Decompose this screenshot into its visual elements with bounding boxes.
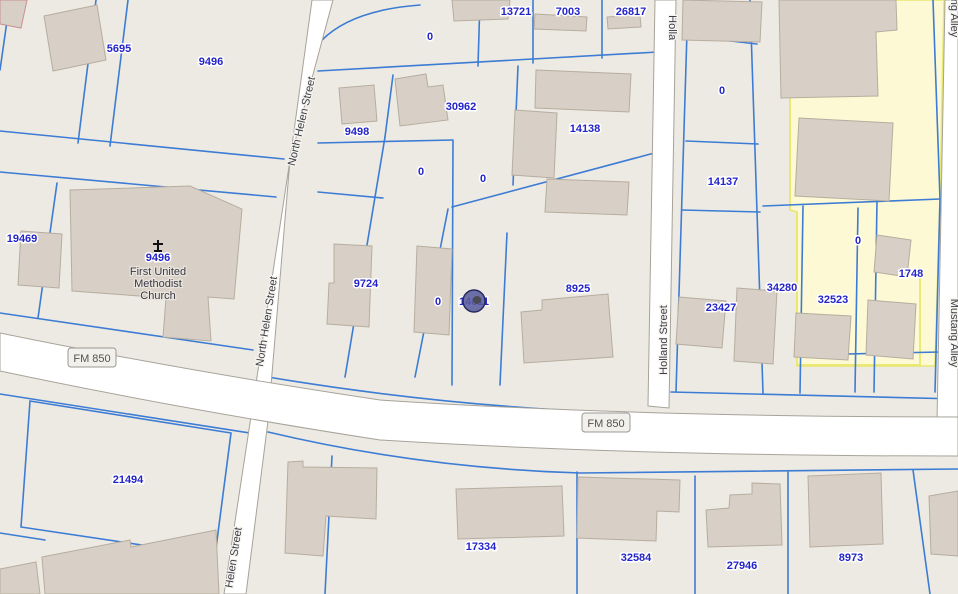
parcel-label-0: 0 xyxy=(435,296,441,308)
parcel-label-32584: 32584 xyxy=(621,552,652,564)
parcel-label-13721: 13721 xyxy=(501,6,532,18)
parcel-label-34280: 34280 xyxy=(767,282,798,294)
parcel-label-17334: 17334 xyxy=(466,541,497,553)
parcel-label-0: 0 xyxy=(427,31,433,43)
road-badge-label: FM 850 xyxy=(587,418,624,430)
building xyxy=(414,246,452,335)
building xyxy=(929,491,958,556)
map-viewport[interactable]: 5695949601372170032681794983096214138000… xyxy=(0,0,958,594)
parcel-label-0: 0 xyxy=(480,173,486,185)
road-badge-fm850-east: FM 850 xyxy=(582,413,630,432)
road-badge-label: FM 850 xyxy=(73,353,110,365)
street-label-text: Mustang Alley xyxy=(948,299,958,368)
building xyxy=(794,313,851,360)
building xyxy=(456,486,564,539)
parcel-label-32523: 32523 xyxy=(818,294,849,306)
parcel-label-5695: 5695 xyxy=(107,43,131,55)
building xyxy=(682,0,762,42)
road-badge-fm850-west: FM 850 xyxy=(68,348,116,367)
parcel-label-1748: 1748 xyxy=(899,268,923,280)
building xyxy=(339,85,377,124)
church-name-line: Methodist xyxy=(134,278,182,290)
church-name-line: Church xyxy=(140,290,175,302)
parcel-label-9496-church: 9496 xyxy=(146,252,170,264)
street-label: Mustang Alley xyxy=(948,299,958,368)
building xyxy=(734,288,777,364)
building xyxy=(535,70,631,112)
parcel-label-19469: 19469 xyxy=(7,233,38,245)
parcel-label-9496: 9496 xyxy=(199,56,223,68)
church-name-line: First United xyxy=(130,266,186,278)
street-label-text: Holland Street xyxy=(658,305,670,375)
building xyxy=(866,300,916,359)
street-label-text: Mustang Alley xyxy=(948,0,958,38)
selected-point-dot xyxy=(473,296,481,304)
parcel-label-0: 0 xyxy=(418,166,424,178)
parcel-label-14138: 14138 xyxy=(570,123,601,135)
parcel-label-30962: 30962 xyxy=(446,101,477,113)
parcel-label-14137: 14137 xyxy=(708,176,739,188)
parcel-label-9498: 9498 xyxy=(345,126,369,138)
building xyxy=(44,5,106,71)
parcel-label-26817: 26817 xyxy=(616,6,647,18)
parcel-label-0: 0 xyxy=(719,85,725,97)
building xyxy=(808,473,883,547)
map-canvas[interactable]: 5695949601372170032681794983096214138000… xyxy=(0,0,958,594)
street-label: Mustang Alley xyxy=(948,0,958,38)
parcel-label-8973: 8973 xyxy=(839,552,863,564)
building xyxy=(512,110,557,178)
parcel-label-8925: 8925 xyxy=(566,283,590,295)
parcel-label-9724: 9724 xyxy=(354,278,379,290)
parcel-label-23427: 23427 xyxy=(706,302,737,314)
building xyxy=(545,179,629,215)
street-label: Holland Street xyxy=(658,305,670,375)
building xyxy=(795,118,893,201)
parcel-label-0: 0 xyxy=(855,235,861,247)
parcel-label-21494: 21494 xyxy=(113,474,144,486)
parcel-label-7003: 7003 xyxy=(556,6,580,18)
parcel-label-27946: 27946 xyxy=(727,560,758,572)
